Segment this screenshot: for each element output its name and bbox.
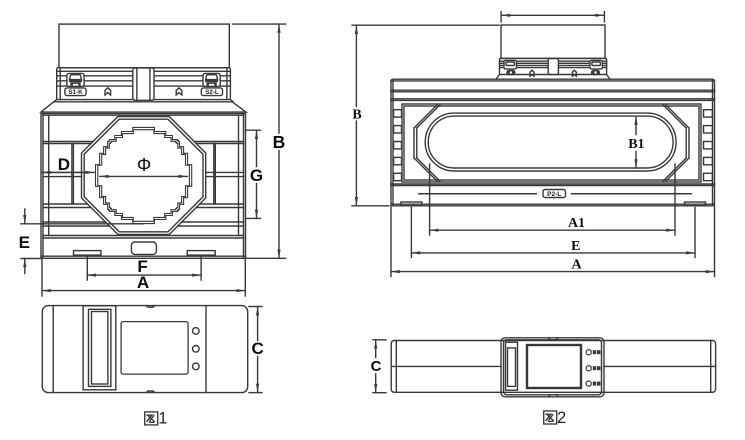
svg-text:G: G (250, 166, 263, 185)
svg-text:E: E (19, 233, 30, 252)
svg-text:C: C (371, 358, 382, 375)
svg-text:D: D (58, 155, 70, 174)
svg-text:S2-L: S2-L (205, 89, 219, 96)
svg-text:1: 1 (158, 410, 167, 428)
svg-text:B: B (352, 107, 361, 122)
svg-text:S1-K: S1-K (68, 89, 83, 96)
svg-text:A: A (137, 273, 149, 292)
svg-text:E: E (571, 239, 580, 254)
svg-text:A: A (571, 258, 582, 273)
svg-text:C: C (251, 339, 263, 358)
svg-text:Φ: Φ (137, 155, 151, 175)
svg-text:P2-L: P2-L (547, 191, 561, 198)
svg-text:A1: A1 (568, 216, 585, 231)
svg-text:B: B (273, 132, 286, 152)
svg-text:B1: B1 (628, 137, 644, 152)
svg-text:2: 2 (557, 409, 566, 427)
